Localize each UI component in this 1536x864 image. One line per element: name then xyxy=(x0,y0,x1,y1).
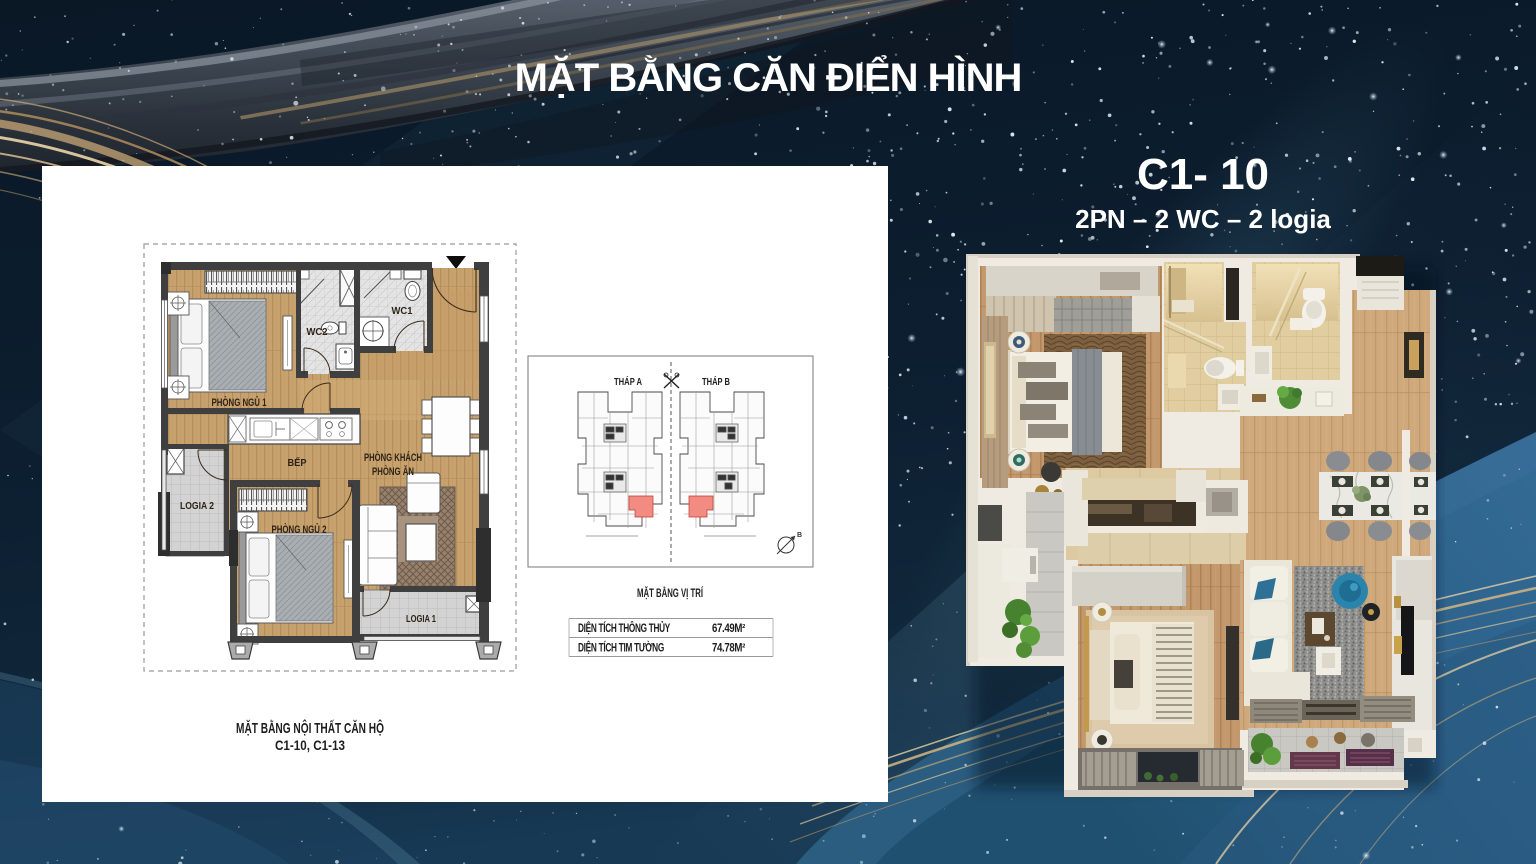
svg-text:PHÒNG NGỦ 2: PHÒNG NGỦ 2 xyxy=(272,523,327,536)
svg-text:PHÒNG NGỦ 1: PHÒNG NGỦ 1 xyxy=(212,396,267,409)
svg-text:67.49M²: 67.49M² xyxy=(712,623,745,635)
svg-text:MẶT BẰNG VỊ TRÍ: MẶT BẰNG VỊ TRÍ xyxy=(637,587,704,600)
svg-text:MẶT BẰNG NỘI THẤT CĂN HỘ: MẶT BẰNG NỘI THẤT CĂN HỘ xyxy=(236,719,384,737)
svg-text:BẾP: BẾP xyxy=(288,456,307,469)
svg-text:PHÒNG KHÁCH: PHÒNG KHÁCH xyxy=(364,451,422,464)
svg-text:PHÒNG ĂN: PHÒNG ĂN xyxy=(372,465,414,478)
svg-text:WC1: WC1 xyxy=(392,306,413,317)
svg-text:DIỆN TÍCH THÔNG THỦY: DIỆN TÍCH THÔNG THỦY xyxy=(578,622,671,635)
svg-text:THÁP A: THÁP A xyxy=(614,375,642,388)
svg-text:C1-10, C1-13: C1-10, C1-13 xyxy=(275,737,345,753)
svg-text:DIỆN TÍCH TIM TƯỜNG: DIỆN TÍCH TIM TƯỜNG xyxy=(578,642,664,655)
svg-text:74.78M²: 74.78M² xyxy=(712,643,745,655)
svg-text:WC2: WC2 xyxy=(307,327,328,338)
svg-text:B: B xyxy=(797,532,802,539)
svg-text:LOGIA 2: LOGIA 2 xyxy=(180,501,214,512)
svg-text:THÁP B: THÁP B xyxy=(702,375,730,388)
svg-text:LOGIA 1: LOGIA 1 xyxy=(406,614,436,625)
